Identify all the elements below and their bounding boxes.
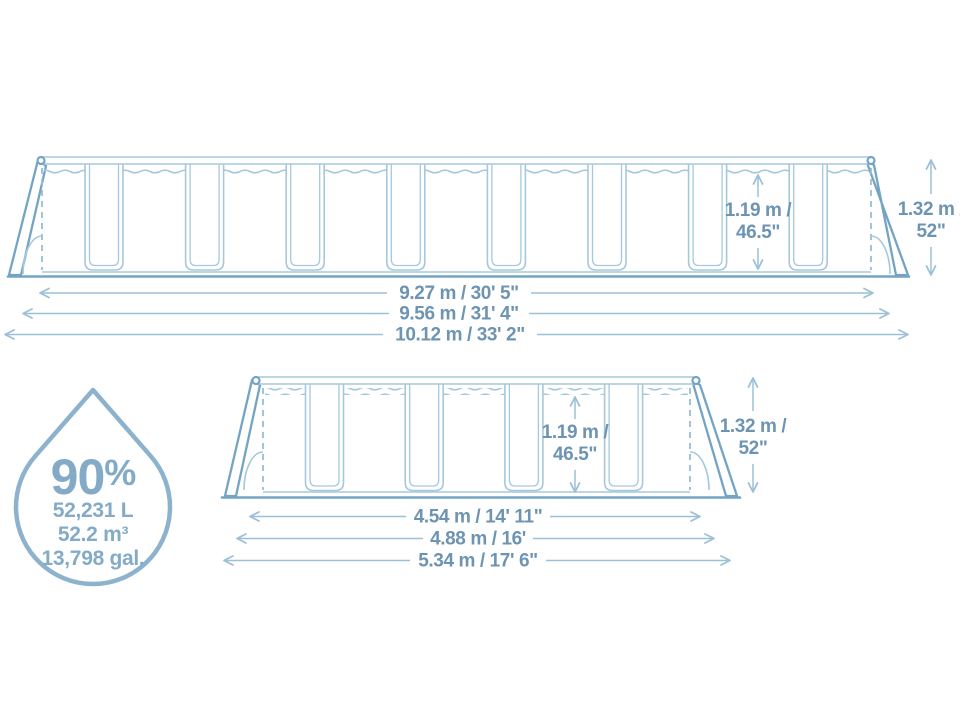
large-pool-side-view: 1.19 m / 46.5" 1.32 m / 52" 9.27 m / 30'… [5, 157, 960, 346]
large-pool-right-liner-curve [871, 236, 890, 274]
large-pool-wall-channels [85, 164, 827, 270]
small-pool-right-liner-curve [690, 452, 709, 490]
large-pool-top-rail [38, 157, 874, 164]
large-pool-frame-height-metric: 1.32 m / [898, 199, 960, 220]
small-pool-frame-height-metric: 1.32 m / [720, 416, 788, 437]
small-pool-wall-height-imperial: 46.5" [553, 444, 597, 465]
small-pool-length-dimension-2: 4.88 m / 16' [237, 529, 714, 550]
small-pool-length-label-3: 5.34 m / 17' 6" [418, 551, 538, 572]
small-pool-wall-height-dimension: 1.19 m / 46.5" [542, 397, 610, 492]
small-pool-left-liner-curve [244, 452, 263, 490]
small-pool-frame-height-imperial: 52" [739, 438, 768, 459]
large-pool-rail-cap-left [38, 157, 45, 164]
small-pool-right-leg [692, 380, 737, 496]
large-pool-left-leg [9, 160, 46, 275]
small-pool-length-dimension-3: 5.34 m / 17' 6" [224, 551, 730, 572]
small-pool-rail-cap-left [253, 377, 260, 384]
large-pool-length-label-3: 10.12 m / 33' 2" [395, 325, 525, 346]
capacity-drop: 90% 52,231 L 52.2 m³ 13,798 gal. [16, 390, 170, 584]
large-pool-length-label-2: 9.56 m / 31' 4" [399, 304, 519, 325]
large-pool-length-label-1: 9.27 m / 30' 5" [399, 283, 519, 304]
large-pool-length-dimension-1: 9.27 m / 30' 5" [40, 283, 873, 304]
small-pool-wall-height-metric: 1.19 m / [542, 422, 610, 443]
large-pool-wall-height-dimension: 1.19 m / 46.5" [725, 175, 793, 269]
small-pool-length-label-1: 4.54 m / 14' 11" [414, 507, 543, 528]
small-pool-left-leg [225, 380, 260, 496]
large-pool-length-dimension-3: 10.12 m / 33' 2" [5, 325, 908, 346]
small-pool-side-view: 1.19 m / 46.5" 1.32 m / 52" 4.54 m / 14'… [222, 377, 787, 572]
large-pool-wall-height-metric: 1.19 m / [725, 200, 793, 221]
pool-dimensions-diagram: 1.19 m / 46.5" 1.32 m / 52" 9.27 m / 30'… [0, 0, 960, 720]
large-pool-waterline [44, 168, 869, 175]
large-pool-rail-cap-right [868, 157, 875, 164]
large-pool-length-dimension-2: 9.56 m / 31' 4" [23, 304, 889, 325]
small-pool-top-rail [253, 377, 699, 384]
large-pool-frame-height-imperial: 52" [917, 221, 946, 242]
large-pool-frame-height-dimension: 1.32 m / 52" [898, 160, 960, 275]
small-pool-length-dimension-1: 4.54 m / 14' 11" [250, 507, 700, 528]
capacity-liters: 52,231 L [53, 499, 134, 522]
large-pool-wall-height-imperial: 46.5" [736, 222, 780, 243]
capacity-gallons: 13,798 gal. [42, 547, 145, 570]
capacity-cubic-meters: 52.2 m³ [58, 523, 129, 546]
small-pool-rail-cap-right [693, 377, 700, 384]
pool-size-diagram-page: 1.19 m / 46.5" 1.32 m / 52" 9.27 m / 30'… [0, 0, 960, 720]
small-pool-length-label-2: 4.88 m / 16' [430, 529, 526, 550]
